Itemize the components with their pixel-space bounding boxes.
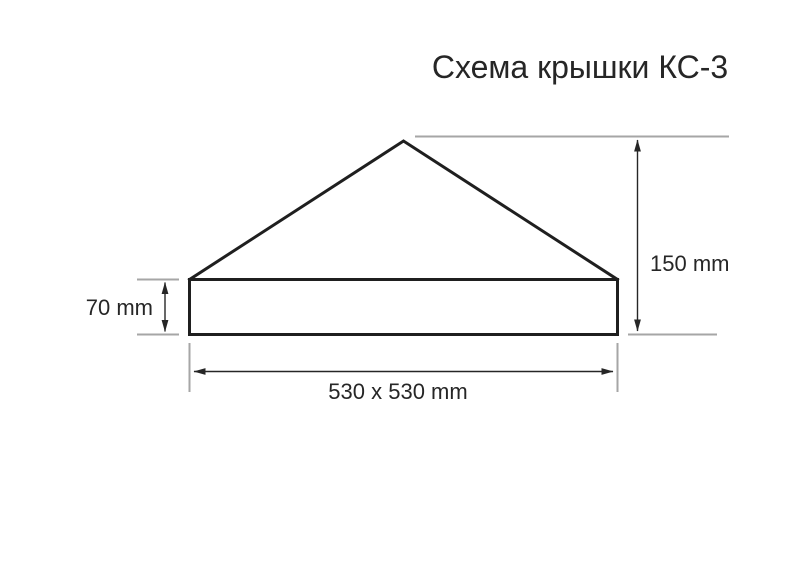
diagram-title: Схема крышки КС-3 (432, 49, 728, 85)
drawing-page: Схема крышки КС-3 70 mm 150 mm 530 x 530… (0, 0, 794, 567)
footprint-label: 530 x 530 mm (328, 379, 467, 404)
cap-schematic-diagram: Схема крышки КС-3 70 mm 150 mm 530 x 530… (0, 0, 794, 567)
cap-base-rectangle (190, 280, 618, 335)
total-height-label: 150 mm (650, 251, 729, 276)
cap-roof-triangle (190, 141, 618, 280)
base-height-label: 70 mm (86, 295, 153, 320)
